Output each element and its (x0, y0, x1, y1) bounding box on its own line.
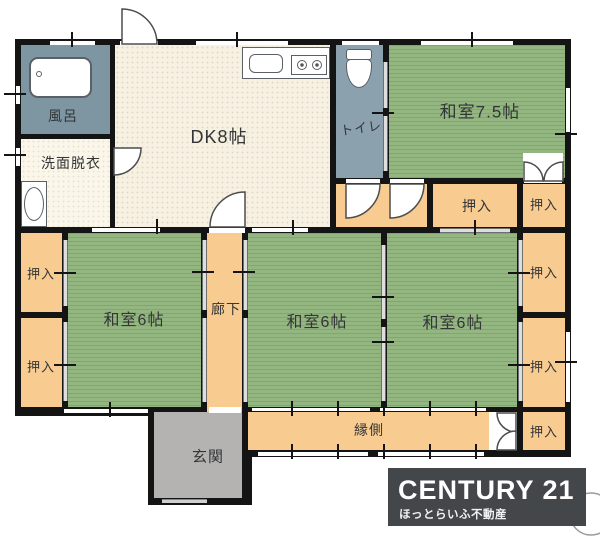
room-label-japanese-75: 和室7.5帖 (440, 98, 521, 123)
door-opening (390, 179, 424, 183)
window-marker (378, 452, 484, 456)
door-opening (489, 412, 517, 450)
room-label-entrance: 玄関 (192, 446, 224, 467)
closet-label: 押入 (530, 357, 558, 376)
window-marker (196, 41, 288, 45)
window-marker (16, 86, 20, 104)
tick-marker (474, 220, 476, 235)
room-label-washroom: 洗面脱衣 (41, 153, 101, 173)
tick-marker (192, 271, 214, 273)
tick-marker (71, 32, 73, 47)
room-label-corridor: 廊下 (211, 299, 241, 319)
tick-marker (337, 401, 339, 416)
room-label-veranda: 縁側 (354, 420, 384, 440)
sliding-door-marker (381, 245, 386, 319)
sliding-door-marker (381, 327, 386, 401)
tick-marker (337, 444, 339, 459)
sliding-door-marker (63, 322, 68, 401)
window-marker (566, 88, 570, 132)
room-label-bath: 風呂 (48, 106, 78, 126)
window-marker (252, 408, 370, 411)
room-label-japanese-6-right: 和室6帖 (423, 309, 484, 333)
tick-marker (372, 112, 394, 114)
sliding-door-marker (202, 318, 207, 402)
window-marker (64, 409, 148, 413)
closet-label: 押入 (462, 196, 492, 216)
door-opening (209, 228, 245, 233)
entrance-door (162, 499, 207, 503)
closet-label: 押入 (530, 195, 558, 214)
closet-label: 押入 (27, 357, 55, 376)
closet-label: 押入 (530, 422, 558, 441)
brand-logo: CENTURY 21 ほっとらいふ不動産 (388, 468, 586, 526)
tick-marker (54, 272, 76, 274)
door-opening (209, 407, 241, 413)
window-marker (566, 332, 570, 402)
tick-marker (475, 401, 477, 416)
sliding-door-marker (383, 116, 388, 171)
tick-marker (471, 32, 473, 47)
floor-plan: 風呂 洗面脱衣 DK8帖 トイレ 和室7.5帖 押入 押入 押入 押入 和室6帖… (0, 0, 600, 539)
sliding-door-marker (383, 62, 388, 108)
company-name: ほっとらいふ不動産 (399, 506, 507, 522)
door-opening (346, 179, 380, 183)
sliding-door-marker (202, 240, 207, 310)
window-marker (258, 452, 368, 456)
closet-label: 押入 (27, 264, 55, 283)
sliding-door-marker (243, 318, 248, 402)
room-label-japanese-6-middle: 和室6帖 (287, 308, 348, 332)
tick-marker (156, 219, 158, 234)
tick-marker (429, 401, 431, 416)
tick-marker (383, 444, 385, 459)
tick-marker (429, 444, 431, 459)
hallway-nook (336, 184, 427, 227)
room-label-dk: DK8帖 (190, 123, 247, 149)
tick-marker (4, 93, 26, 95)
room-label-japanese-6-left: 和室6帖 (104, 306, 165, 330)
tick-marker (109, 402, 111, 417)
tick-marker (508, 364, 530, 366)
window-marker (421, 41, 513, 45)
tick-marker (233, 271, 255, 273)
tick-marker (508, 272, 530, 274)
bathtub-icon (29, 57, 92, 98)
tick-marker (292, 220, 294, 235)
tick-marker (555, 361, 577, 363)
window-marker (380, 408, 486, 411)
window-marker (252, 228, 308, 232)
bathtub-drain-icon (36, 71, 42, 77)
stove-burner-icon (297, 60, 307, 70)
door-opening (523, 153, 563, 180)
tick-marker (372, 296, 394, 298)
brand-logo-text: CENTURY 21 (398, 475, 575, 506)
tick-marker (291, 444, 293, 459)
closet-label: 押入 (530, 263, 558, 282)
tick-marker (291, 401, 293, 416)
tick-marker (372, 341, 394, 343)
window-marker (342, 41, 379, 45)
tick-marker (236, 32, 238, 47)
sliding-door-marker (243, 240, 248, 310)
door-opening (120, 41, 158, 45)
tick-marker (475, 444, 477, 459)
washbasin-bowl-icon (24, 187, 44, 221)
tick-marker (555, 133, 577, 135)
stove-burner-icon (312, 60, 322, 70)
tick-marker (383, 401, 385, 416)
tick-marker (4, 154, 26, 156)
window-marker (16, 148, 20, 166)
room-corridor (207, 233, 242, 412)
sliding-door-marker (518, 322, 523, 401)
tick-marker (54, 364, 76, 366)
window-marker (92, 228, 160, 232)
kitchen-sink-icon (249, 54, 283, 73)
